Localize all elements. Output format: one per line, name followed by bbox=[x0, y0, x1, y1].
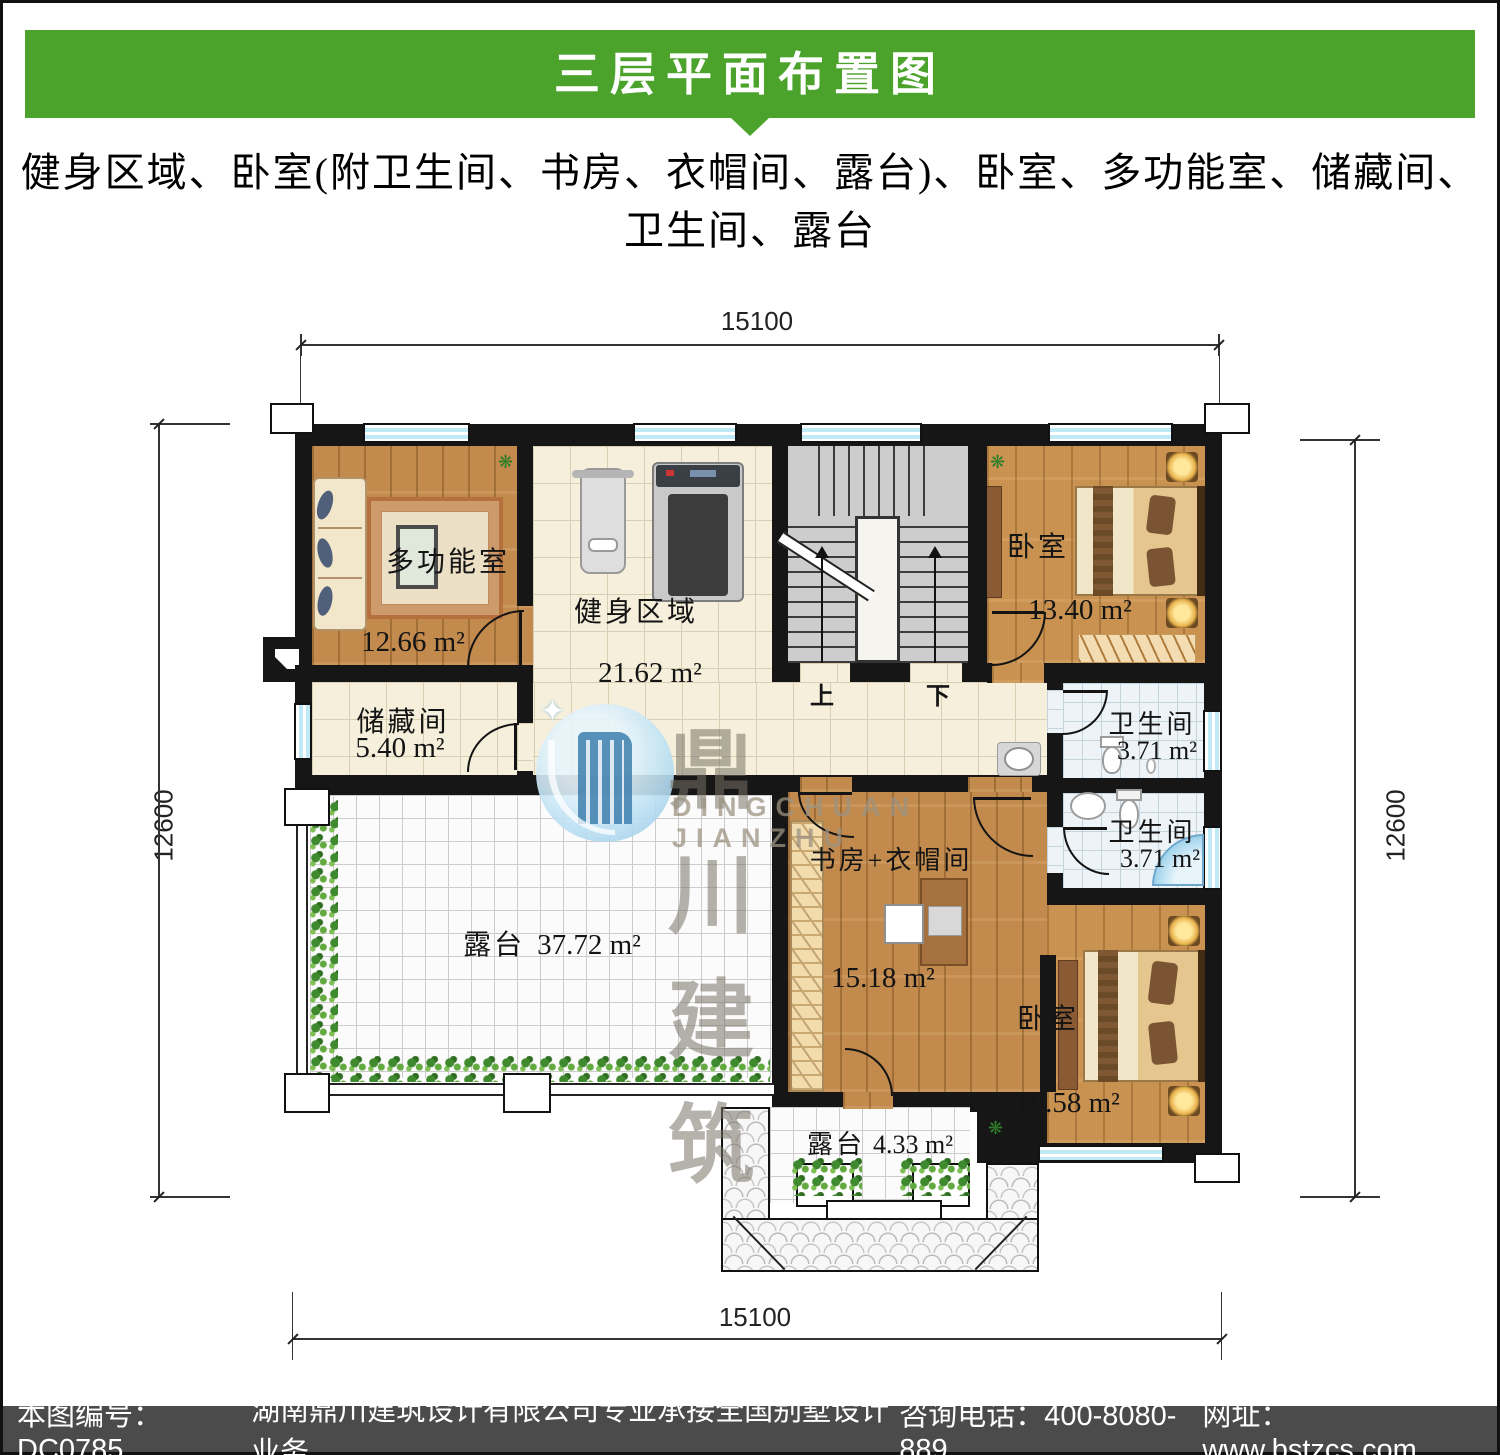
corner-block-wing bbox=[1194, 1153, 1240, 1183]
dim-right-line bbox=[1354, 440, 1356, 1198]
footer-website: 网址：www.bstzcs.com bbox=[1202, 1392, 1483, 1455]
dim-left-line bbox=[158, 424, 160, 1198]
room-list-line2: 卫生间、露台 bbox=[0, 198, 1500, 256]
headboard bbox=[1197, 486, 1205, 596]
opening-study-door-right bbox=[968, 777, 1032, 792]
stair-label-up: 上 bbox=[810, 676, 834, 711]
floor-plan-sheet: 三层平面布置图 健身区域、卧室(附卫生间、书房、衣帽间、露台)、卧室、多功能室、… bbox=[0, 0, 1500, 1455]
room-area-bedroom1: 13.40 m² bbox=[1028, 594, 1132, 627]
plant-sprig-icon: ❋ bbox=[988, 1118, 1003, 1139]
wall-stair-right bbox=[968, 446, 987, 663]
room-area-bath1: 3.71 m² bbox=[1117, 736, 1197, 766]
opening-bath1-door bbox=[1047, 690, 1063, 733]
terrace-post-bottom-center bbox=[503, 1073, 551, 1113]
pillow bbox=[1146, 495, 1176, 536]
corner-block-top-left bbox=[270, 403, 314, 434]
bed-runner bbox=[1098, 950, 1118, 1082]
terrace-large-name: 露台 bbox=[463, 930, 525, 961]
dim-right-end-bottom bbox=[1300, 1196, 1380, 1198]
planter-flowers-left bbox=[792, 1158, 862, 1196]
opening-study-door-left bbox=[800, 777, 852, 792]
window-top-4 bbox=[1048, 423, 1173, 443]
footer-phone: 咨询电话：400-8080-889 bbox=[899, 1392, 1202, 1455]
stair-arrow-down-head bbox=[928, 546, 942, 558]
banner-pointer-triangle bbox=[731, 118, 769, 136]
planter-flowers-right bbox=[900, 1158, 970, 1196]
exercise-bike-handle bbox=[572, 470, 634, 478]
window-right-bath1 bbox=[1203, 710, 1222, 772]
stair-arrow-down-line bbox=[934, 556, 936, 668]
bed-runner bbox=[1093, 486, 1113, 596]
dim-top-value: 15100 bbox=[721, 306, 793, 337]
room-label-bedroom2: 卧室 bbox=[1017, 997, 1079, 1037]
dim-right-end-top bbox=[1300, 439, 1380, 441]
exercise-bike bbox=[580, 468, 626, 574]
window-top-2 bbox=[633, 423, 737, 443]
window-left-storage bbox=[294, 703, 312, 760]
dim-left-end-bottom bbox=[150, 1196, 230, 1198]
treadmill-light bbox=[666, 470, 674, 476]
porch-roof bbox=[721, 1218, 1039, 1272]
corner-block-top-right bbox=[1204, 403, 1250, 434]
dim-witness bbox=[292, 1292, 293, 1360]
nightstand-lamp bbox=[1168, 1086, 1200, 1116]
terrace-railing-left bbox=[296, 795, 308, 1095]
sofa-cushion-line bbox=[318, 577, 362, 579]
door-leaf-storage bbox=[514, 723, 517, 770]
door-leaf-study-left bbox=[798, 792, 852, 795]
bedside-rug bbox=[1078, 634, 1196, 663]
room-label-terrace-large: 露台 37.72 m² bbox=[463, 923, 641, 963]
plant-sprig-icon: ❋ bbox=[990, 452, 1005, 473]
door-leaf-bath1 bbox=[1063, 690, 1106, 693]
page-title: 三层平面布置图 bbox=[25, 30, 1475, 118]
room-area-multi: 12.66 m² bbox=[361, 626, 465, 659]
terrace-small-name: 露台 bbox=[807, 1130, 865, 1159]
room-label-study: 书房+衣帽间 bbox=[810, 840, 973, 877]
footer-bar: 本图编号：DC0785 湖南鼎川建筑设计有限公司专业承接全国别墅设计业务 咨询电… bbox=[3, 1406, 1497, 1452]
room-area-storage: 5.40 m² bbox=[355, 732, 444, 765]
nightstand-lamp bbox=[1166, 598, 1198, 628]
room-label-bedroom1: 卧室 bbox=[1007, 525, 1069, 565]
door-leaf-study-right bbox=[973, 797, 1031, 800]
terrace-plants-left bbox=[310, 800, 338, 1078]
room-label-fitness: 健身区域 bbox=[574, 590, 698, 630]
headboard bbox=[1198, 950, 1205, 1082]
dim-right-value: 12600 bbox=[1381, 789, 1412, 861]
hall-sink bbox=[1004, 747, 1034, 771]
exercise-bike-seat bbox=[588, 538, 618, 552]
door-leaf-multi bbox=[519, 610, 522, 665]
room-area-fitness: 21.62 m² bbox=[598, 657, 702, 690]
dresser bbox=[985, 486, 1002, 598]
plant-sprig-icon: ❋ bbox=[498, 452, 513, 473]
opening-storage-door bbox=[517, 723, 533, 771]
treadmill-belt bbox=[668, 494, 728, 596]
dim-left-end-top bbox=[150, 423, 230, 425]
treadmill-display bbox=[690, 470, 716, 477]
stair-arrow-up-line bbox=[821, 556, 823, 668]
room-area-bedroom2: 16.58 m² bbox=[1016, 1087, 1120, 1120]
title-banner: 三层平面布置图 bbox=[25, 30, 1475, 118]
desk-device bbox=[928, 906, 962, 936]
wall-multi-bottom bbox=[295, 665, 533, 682]
room-area-bath2: 3.71 m² bbox=[1120, 844, 1200, 874]
pillow bbox=[1148, 1021, 1178, 1065]
stair-flight-top bbox=[818, 446, 938, 516]
stair-arrow-up-head bbox=[815, 546, 829, 558]
window-bottom-bedroom2 bbox=[1038, 1145, 1164, 1162]
room-label-terrace-small: 露台 4.33 m² bbox=[807, 1124, 953, 1161]
footer-company: 湖南鼎川建筑设计有限公司专业承接全国别墅设计业务 bbox=[251, 1387, 899, 1455]
terrace-large-area: 37.72 m² bbox=[537, 929, 641, 961]
window-right-bath2 bbox=[1203, 826, 1222, 890]
pillow bbox=[1148, 961, 1179, 1006]
pillow bbox=[1146, 547, 1176, 588]
opening-bath2-door bbox=[1047, 827, 1063, 873]
door-leaf-bath2 bbox=[1063, 827, 1107, 830]
terrace-post-bottom-left bbox=[284, 1073, 330, 1113]
monitor bbox=[884, 904, 924, 944]
room-label-multi: 多功能室 bbox=[386, 540, 510, 580]
window-top-3 bbox=[800, 423, 922, 443]
terrace-post-top-left bbox=[284, 788, 330, 826]
dim-bottom-value: 15100 bbox=[719, 1302, 791, 1333]
nightstand-lamp bbox=[1168, 916, 1200, 946]
dim-left-value: 12600 bbox=[149, 789, 180, 861]
porch-step bbox=[826, 1200, 942, 1220]
bath2-sink bbox=[1070, 792, 1106, 820]
flue-corner bbox=[275, 657, 287, 669]
footer-sheet-no: 本图编号：DC0785 bbox=[17, 1392, 251, 1455]
dim-top-line bbox=[300, 344, 1220, 346]
window-top-1 bbox=[363, 423, 470, 443]
terrace-small-area: 4.33 m² bbox=[873, 1130, 953, 1159]
stair-label-down: 下 bbox=[926, 676, 950, 711]
sofa-cushion-line bbox=[318, 527, 362, 529]
dim-witness bbox=[1221, 1292, 1222, 1360]
opening-bedroom1-door bbox=[992, 663, 1044, 683]
room-list-line1: 健身区域、卧室(附卫生间、书房、衣帽间、露台)、卧室、多功能室、储藏间、 bbox=[0, 140, 1500, 198]
dim-bottom-line bbox=[292, 1338, 1222, 1340]
room-area-study: 15.18 m² bbox=[831, 962, 935, 995]
nightstand-lamp bbox=[1166, 452, 1198, 482]
